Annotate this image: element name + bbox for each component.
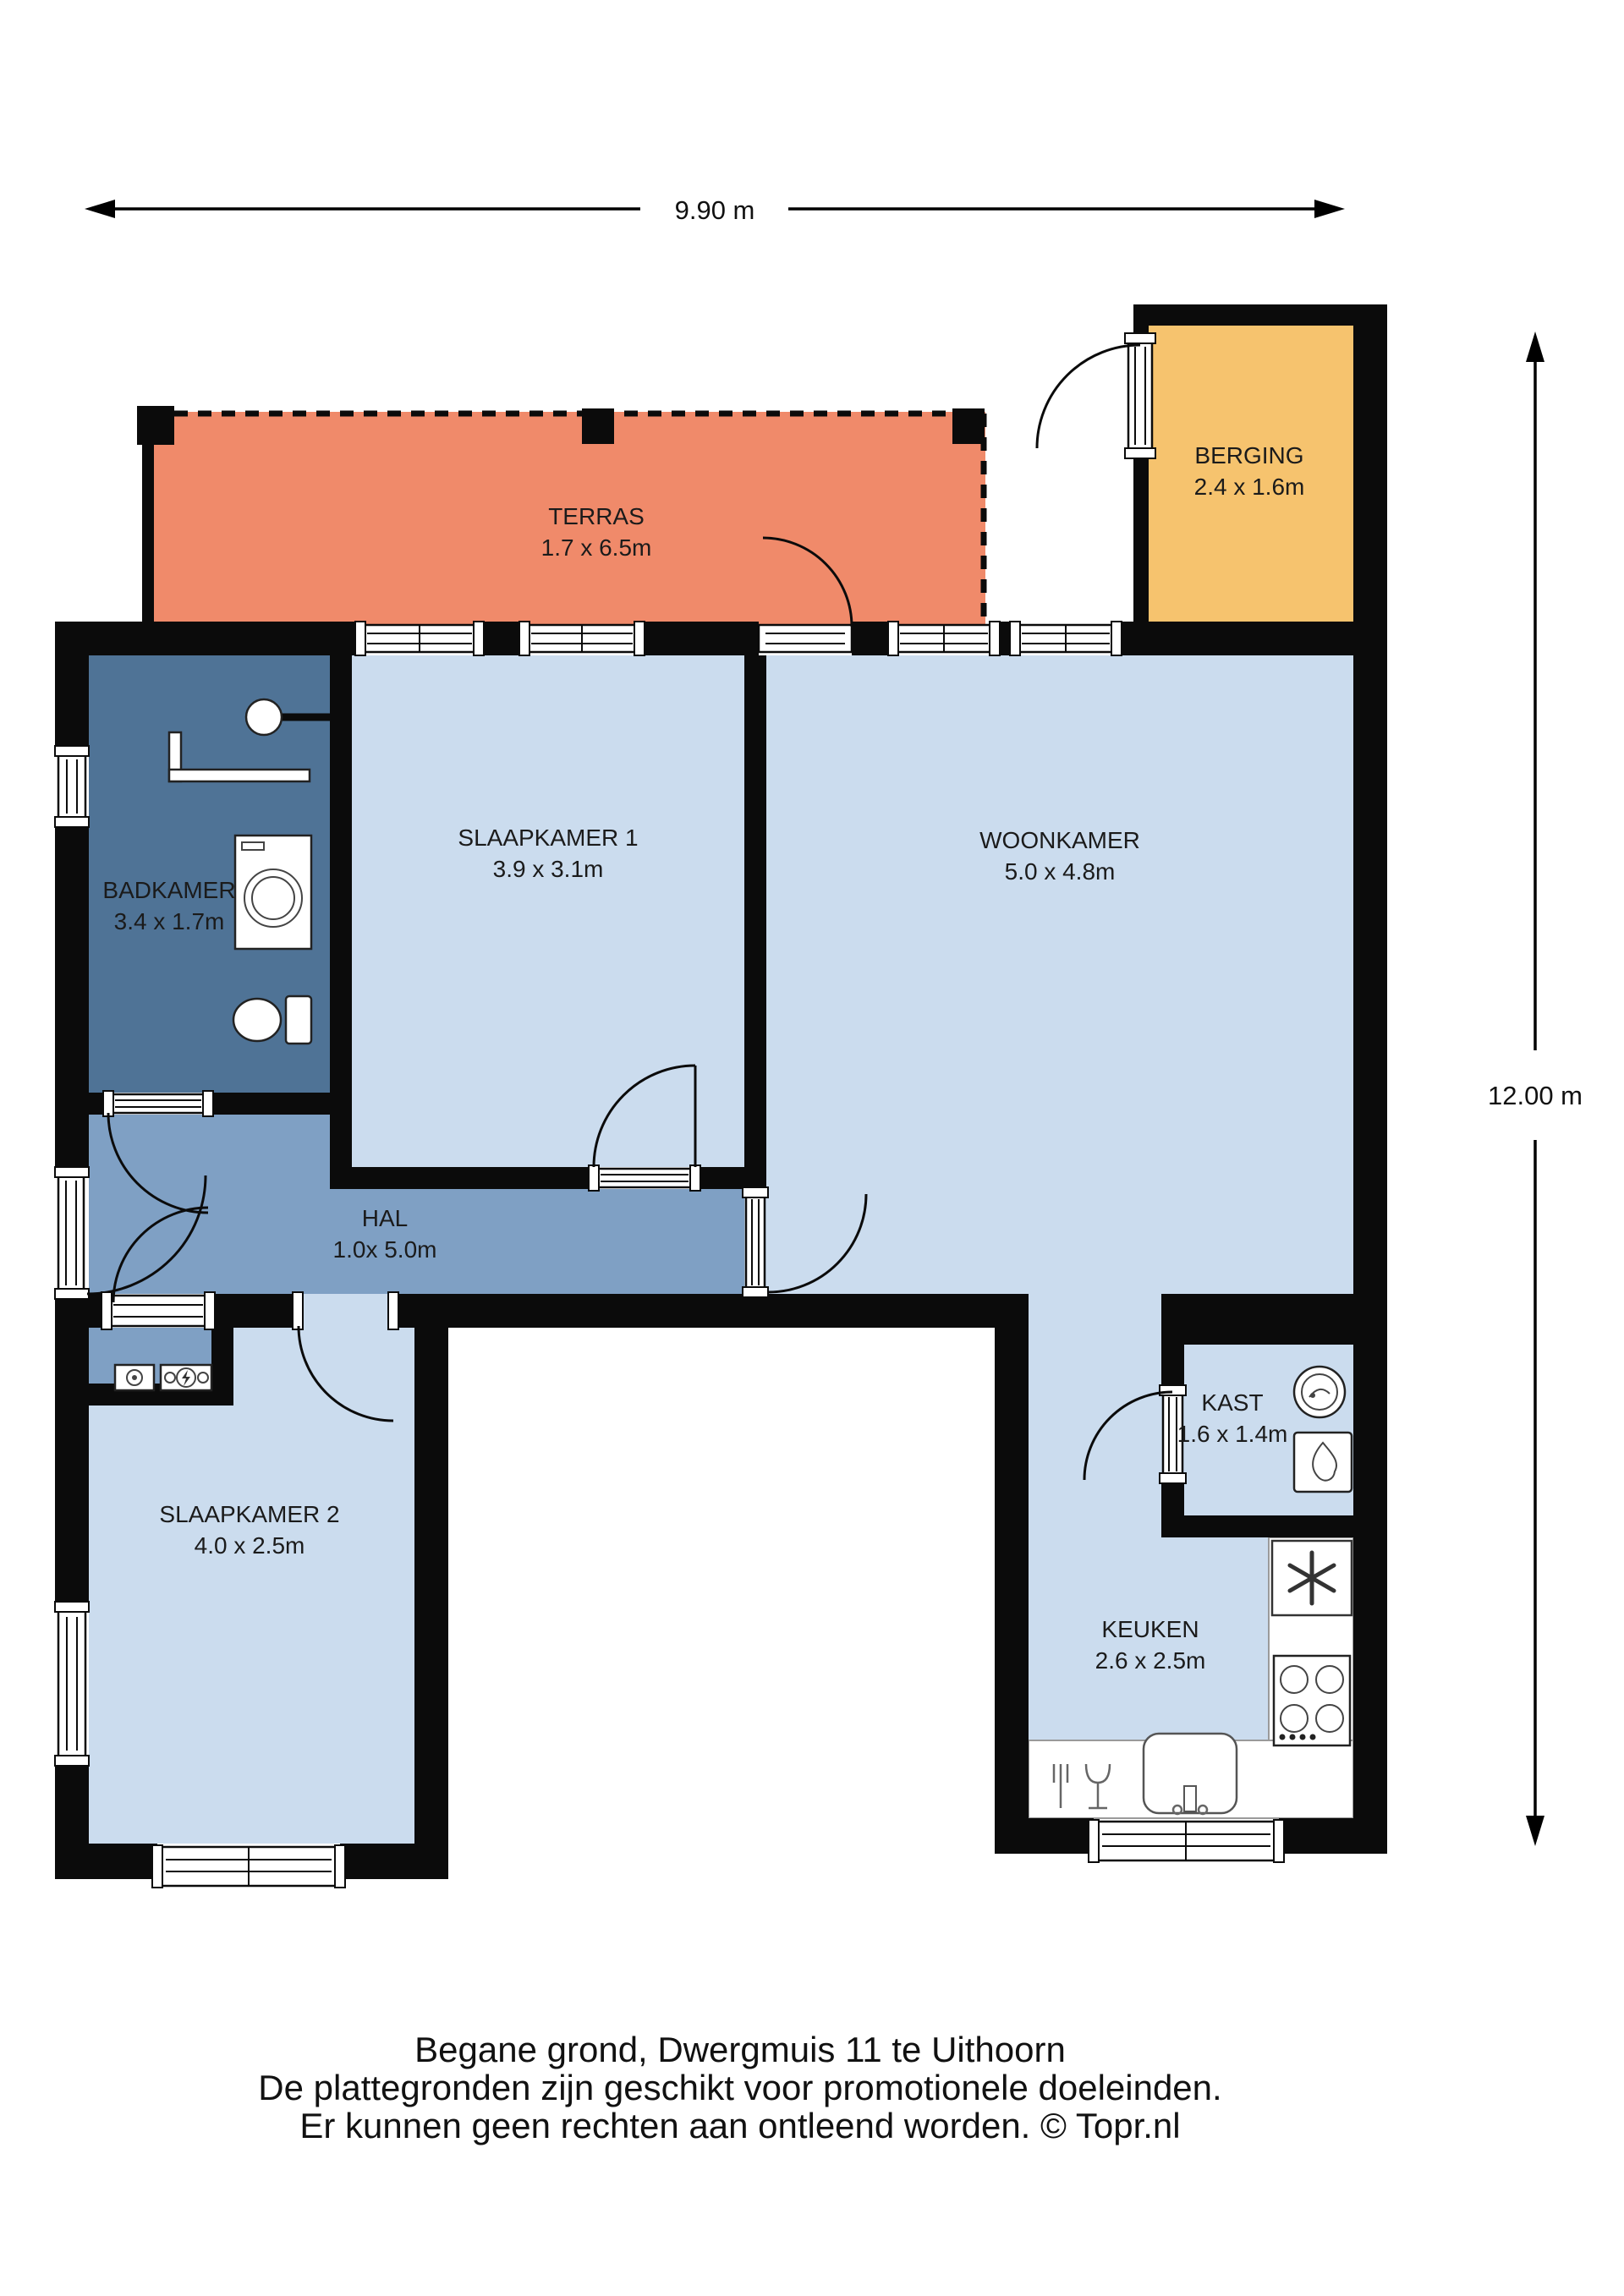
label-keuken-name: KEUKEN	[1101, 1616, 1199, 1642]
label-height-dimension: 12.00 m	[1488, 1081, 1583, 1110]
label-woonkamer-name: WOONKAMER	[979, 827, 1140, 853]
arrowhead-left-icon	[85, 200, 115, 218]
window-slaapkamer1-b	[519, 622, 645, 655]
footer-line2: De plattegronden zijn geschikt voor prom…	[258, 2068, 1221, 2107]
sink-icon	[1144, 1734, 1237, 1814]
label-slaapkamer1-size: 3.9 x 3.1m	[493, 856, 604, 882]
label-hal-name: HAL	[362, 1205, 408, 1231]
window-badkamer	[55, 746, 89, 827]
label-width-dimension: 9.90 m	[675, 195, 755, 225]
label-terras-size: 1.7 x 6.5m	[541, 534, 652, 561]
label-slaapkamer2-name: SLAAPKAMER 2	[159, 1501, 339, 1527]
footer-line1: Begane grond, Dwergmuis 11 te Uithoorn	[414, 2030, 1066, 2069]
footer-line3: Er kunnen geen rechten aan ontleend word…	[299, 2106, 1180, 2145]
room-woonkamer	[766, 655, 1353, 1294]
dimension-height: 12.00 m	[1488, 332, 1583, 1846]
room-hal-left	[89, 1115, 330, 1294]
label-berging-size: 2.4 x 1.6m	[1194, 474, 1305, 500]
label-slaapkamer1-name: SLAAPKAMER 1	[458, 825, 638, 851]
boiler-icon	[1294, 1433, 1352, 1492]
hob-icon	[1274, 1656, 1350, 1745]
water-meter-icon	[115, 1365, 154, 1390]
window-keuken-bottom	[1089, 1820, 1284, 1862]
label-slaapkamer2-size: 4.0 x 2.5m	[195, 1532, 305, 1559]
room-slaapkamer1	[352, 655, 744, 1167]
opening-slaapkamer2	[298, 1294, 393, 1328]
electric-meter-icon	[161, 1365, 211, 1390]
washing-machine-icon	[235, 836, 311, 949]
window-slaapkamer2-bottom	[152, 1845, 345, 1888]
arrowhead-right-icon	[1314, 200, 1345, 218]
arrowhead-down-icon	[1526, 1816, 1544, 1846]
floorplan-page: TERRAS 1.7 x 6.5m BERGING 2.4 x 1.6m BAD…	[0, 0, 1624, 2296]
label-terras-name: TERRAS	[548, 503, 645, 529]
window-woonkamer-b	[1010, 622, 1122, 655]
label-kast-name: KAST	[1201, 1389, 1263, 1416]
arrowhead-up-icon	[1526, 332, 1544, 362]
label-badkamer-name: BADKAMER	[102, 877, 235, 903]
label-woonkamer-size: 5.0 x 4.8m	[1005, 858, 1116, 885]
freezer-icon	[1272, 1541, 1352, 1615]
window-slaapkamer2-left	[55, 1602, 89, 1766]
dimension-width: 9.90 m	[85, 195, 1345, 225]
window-slaapkamer1-a	[355, 622, 484, 655]
toilet-icon	[233, 996, 311, 1044]
label-keuken-size: 2.6 x 2.5m	[1095, 1647, 1206, 1674]
door-berging	[1037, 333, 1155, 458]
footer: Begane grond, Dwergmuis 11 te Uithoorn D…	[258, 2030, 1221, 2145]
window-woonkamer-a	[888, 622, 1000, 655]
label-berging-name: BERGING	[1194, 442, 1303, 469]
mechanical-ventilation-icon	[1294, 1367, 1345, 1417]
label-hal-size: 1.0x 5.0m	[333, 1236, 437, 1263]
label-badkamer-size: 3.4 x 1.7m	[114, 908, 225, 934]
floorplan-canvas: TERRAS 1.7 x 6.5m BERGING 2.4 x 1.6m BAD…	[0, 0, 1624, 2296]
label-kast-size: 1.6 x 1.4m	[1177, 1421, 1288, 1447]
